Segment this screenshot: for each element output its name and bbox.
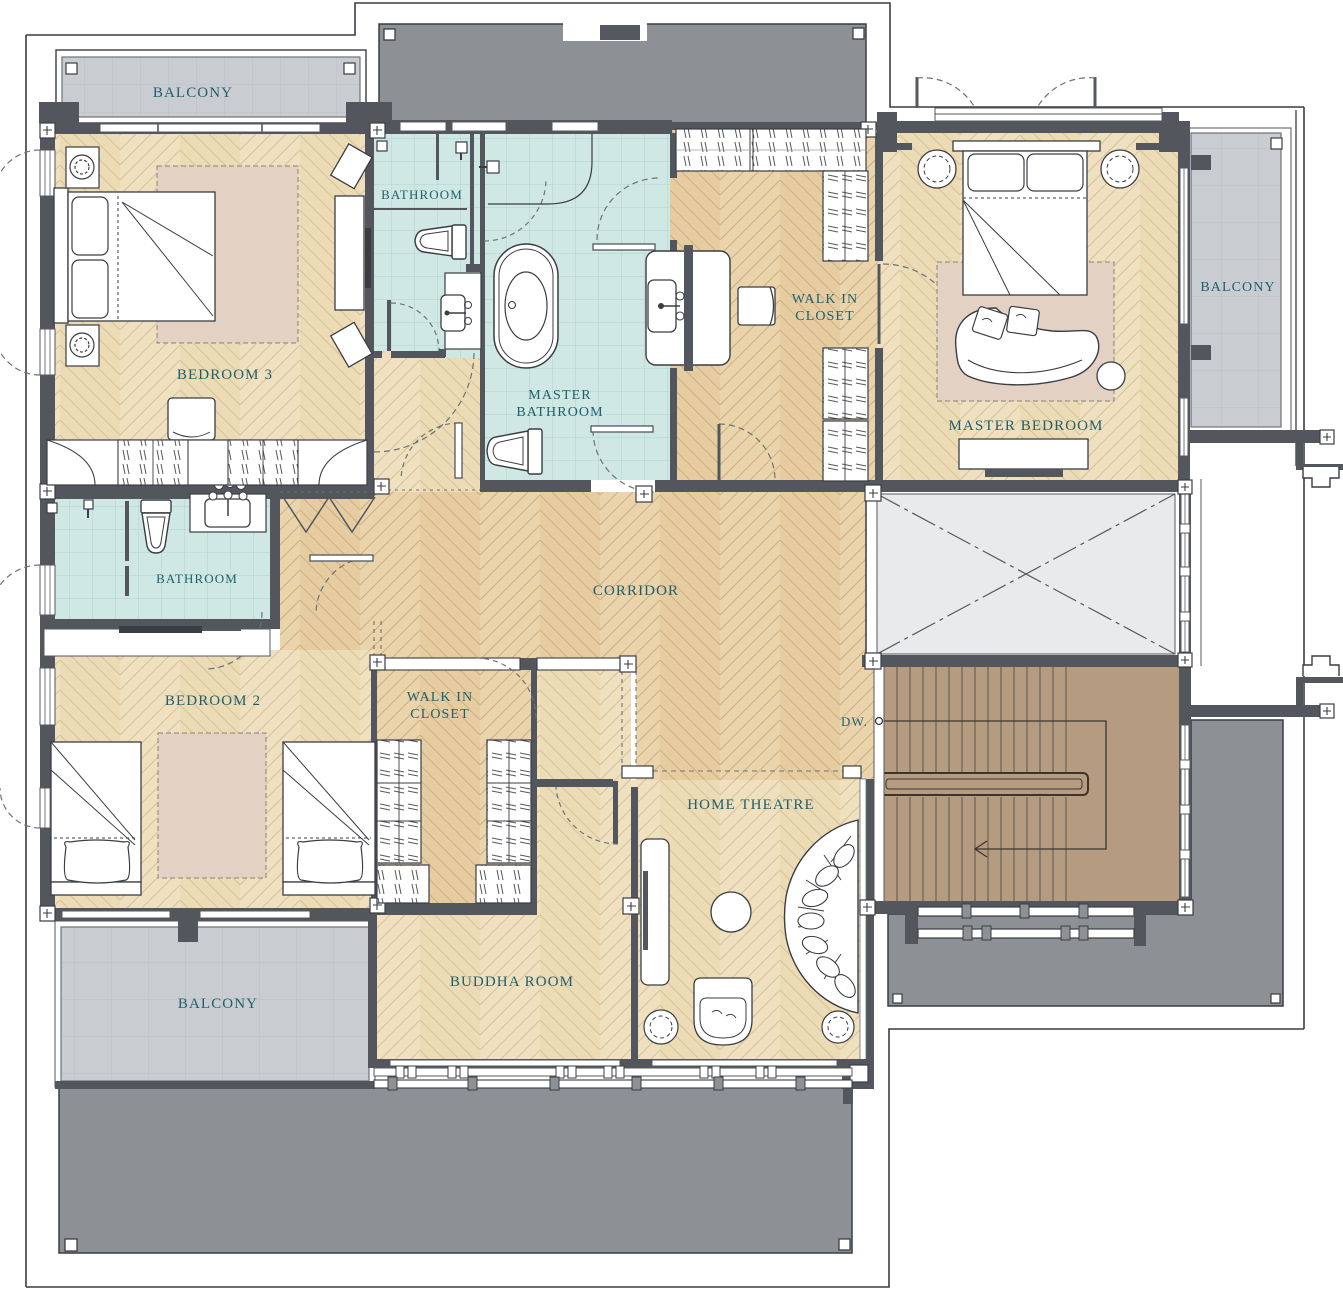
svg-text:CORRIDOR: CORRIDOR — [593, 583, 679, 599]
svg-text:BALCONY: BALCONY — [178, 996, 258, 1012]
svg-text:BALCONY: BALCONY — [1200, 280, 1275, 295]
svg-text:MASTER: MASTER — [528, 388, 591, 403]
svg-text:BATHROOM: BATHROOM — [381, 187, 463, 202]
svg-text:CLOSET: CLOSET — [795, 309, 855, 324]
svg-text:BUDDHA ROOM: BUDDHA ROOM — [450, 974, 574, 990]
svg-text:HOME THEATRE: HOME THEATRE — [687, 797, 815, 813]
svg-text:CLOSET: CLOSET — [410, 707, 470, 722]
svg-text:WALK IN: WALK IN — [792, 292, 858, 307]
svg-text:BATHROOM: BATHROOM — [516, 405, 603, 420]
svg-text:DW.: DW. — [841, 714, 868, 729]
svg-text:BEDROOM 3: BEDROOM 3 — [177, 367, 273, 383]
svg-text:MASTER BEDROOM: MASTER BEDROOM — [949, 418, 1104, 434]
svg-text:WALK IN: WALK IN — [407, 690, 473, 705]
svg-text:BALCONY: BALCONY — [153, 85, 233, 101]
svg-text:BEDROOM 2: BEDROOM 2 — [165, 693, 261, 709]
svg-text:BATHROOM: BATHROOM — [156, 571, 238, 586]
